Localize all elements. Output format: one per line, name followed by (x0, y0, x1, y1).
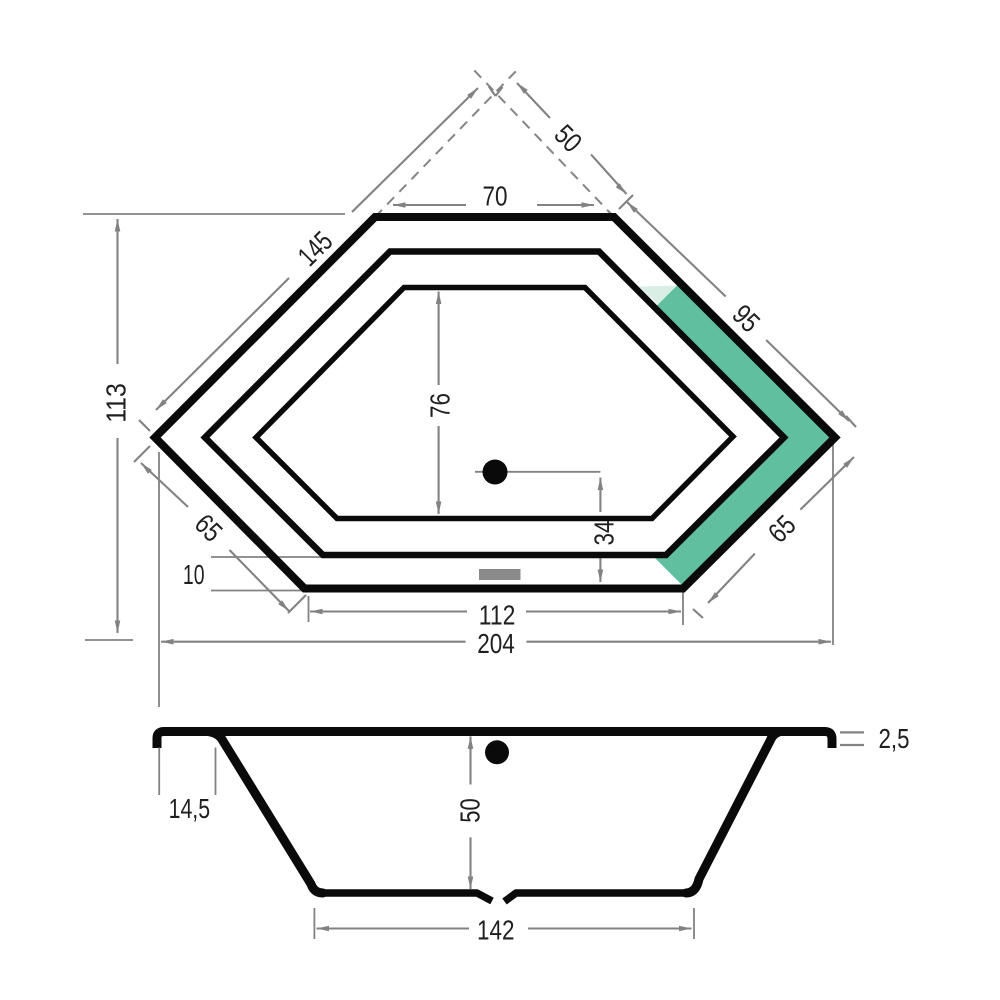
svg-text:14,5: 14,5 (169, 793, 211, 824)
svg-text:204: 204 (477, 628, 515, 659)
svg-text:142: 142 (477, 915, 515, 946)
svg-text:65: 65 (762, 509, 802, 549)
svg-text:50: 50 (548, 119, 588, 159)
svg-text:10: 10 (183, 559, 205, 590)
svg-text:50: 50 (455, 798, 486, 823)
svg-text:112: 112 (479, 599, 516, 630)
svg-text:76: 76 (425, 393, 456, 418)
svg-text:34: 34 (589, 521, 620, 546)
svg-text:113: 113 (101, 383, 132, 423)
svg-text:70: 70 (483, 181, 508, 212)
svg-text:2,5: 2,5 (879, 723, 910, 754)
svg-text:65: 65 (189, 508, 229, 548)
